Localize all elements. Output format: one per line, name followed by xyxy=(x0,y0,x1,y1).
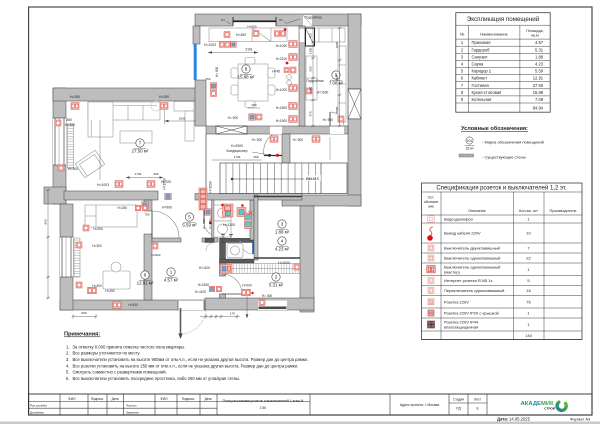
svg-text:Н=1500: Н=1500 xyxy=(209,181,213,192)
svg-text:Кабинет: Кабинет xyxy=(472,76,488,81)
svg-text:Н=300: Н=300 xyxy=(92,244,102,248)
svg-text:Переключатель одноклавишный: Переключатель одноклавишный xyxy=(444,288,504,293)
svg-text:Розетка 220V IP20 с крышкой: Розетка 220V IP20 с крышкой xyxy=(444,311,499,316)
svg-text:Н=250: Н=250 xyxy=(159,95,169,99)
svg-text:27.50: 27.50 xyxy=(533,83,544,88)
svg-text:5.: 5. xyxy=(66,370,70,375)
svg-text:7500: 7500 xyxy=(335,106,339,113)
svg-text:3: 3 xyxy=(281,222,284,227)
svg-text:Н=450: Н=450 xyxy=(236,33,246,37)
svg-text:ние: ние xyxy=(428,205,434,209)
svg-text:Подсобнка: Подсобнка xyxy=(306,79,323,83)
svg-text:4.23 м²: 4.23 м² xyxy=(275,247,290,252)
svg-text:Гостиная: Гостиная xyxy=(472,83,489,88)
svg-text:П1: П1 xyxy=(279,18,283,22)
svg-text:Все выключатели установить на: Все выключатели установить на высоте 900… xyxy=(73,357,309,362)
svg-text:Видеодомофон: Видеодомофон xyxy=(444,217,473,222)
svg-text:450: 450 xyxy=(309,33,313,38)
svg-text:250: 250 xyxy=(251,103,256,107)
svg-text:ВН-МЗ: ВН-МЗ xyxy=(306,176,319,181)
svg-text:Наименование: Наименование xyxy=(480,32,509,37)
svg-text:Н=1000: Н=1000 xyxy=(276,88,287,92)
svg-text:Н=45: Н=45 xyxy=(272,70,280,74)
svg-text:Н=1500: Н=1500 xyxy=(163,178,167,189)
svg-text:84.94: 84.94 xyxy=(533,106,544,111)
svg-text:600: 600 xyxy=(309,66,313,71)
svg-text:1.88 м²: 1.88 м² xyxy=(275,230,290,235)
svg-text:4: 4 xyxy=(281,239,284,244)
svg-text:1:50: 1:50 xyxy=(260,406,267,410)
svg-text:Н=2100: Н=2100 xyxy=(276,57,287,61)
svg-text:Н=1100: Н=1100 xyxy=(199,266,210,270)
svg-text:За отметку 0.000 принята отмет: За отметку 0.000 принята отметка чистого… xyxy=(73,344,186,349)
svg-text:Экспликация помещений: Экспликация помещений xyxy=(467,16,540,23)
svg-text:Все размеры уточняются по мест: Все размеры уточняются по месту. xyxy=(73,351,141,356)
svg-text:1.88: 1.88 xyxy=(535,54,544,59)
svg-text:Н=900: Н=900 xyxy=(152,253,161,257)
svg-text:Формат А3: Формат А3 xyxy=(570,417,591,422)
svg-text:Стадия: Стадия xyxy=(453,398,464,402)
svg-text:250: 250 xyxy=(205,77,210,81)
svg-text:1739: 1739 xyxy=(234,155,241,159)
svg-text:Н=2500: Н=2500 xyxy=(231,144,243,148)
svg-text:Н=300: Н=300 xyxy=(68,167,78,171)
svg-text:обозначе: обозначе xyxy=(424,200,439,204)
svg-text:Н=200: Н=200 xyxy=(242,284,252,288)
svg-text:влагозащищенная: влагозащищенная xyxy=(444,325,478,330)
svg-text:- Существующие стены: - Существующие стены xyxy=(482,155,526,160)
svg-text:СТРОЙ: СТРОЙ xyxy=(544,406,555,410)
svg-text:450: 450 xyxy=(66,118,72,122)
svg-text:Н=250: Н=250 xyxy=(93,227,103,231)
svg-text:Н=1000: Н=1000 xyxy=(276,44,287,48)
svg-text:1500: 1500 xyxy=(335,41,339,48)
svg-text:2: 2 xyxy=(275,275,278,280)
svg-text:Коридор 2: Коридор 2 xyxy=(472,69,492,74)
svg-text:1.: 1. xyxy=(66,344,70,349)
svg-text:Н= 900: Н= 900 xyxy=(228,116,239,120)
svg-text:Н=1100: Н=1100 xyxy=(223,223,235,227)
svg-text:Н= 300: Н= 300 xyxy=(262,294,273,298)
svg-text:Н= 900: Н= 900 xyxy=(323,118,334,122)
svg-text:960: 960 xyxy=(44,219,48,224)
svg-text:10: 10 xyxy=(526,231,531,236)
svg-text:РД: РД xyxy=(456,407,461,411)
svg-text:15.88: 15.88 xyxy=(533,90,544,95)
svg-text:Примечания:: Примечания: xyxy=(64,332,100,338)
svg-text:Заказчик: Заказчик xyxy=(126,410,139,414)
svg-text:Санузел: Санузел xyxy=(472,54,489,59)
svg-text:Н=300: Н=300 xyxy=(65,123,75,127)
svg-text:Рук.службы: Рук.службы xyxy=(30,404,48,408)
svg-text:Дата: Дата xyxy=(204,397,211,401)
svg-text:Гардероб: Гардероб xyxy=(472,47,491,52)
svg-text:Н=1900: Н=1900 xyxy=(276,119,287,123)
svg-text:Все выключатели установить пос: Все выключатели установить посередине пр… xyxy=(73,376,241,381)
svg-text:8: 8 xyxy=(245,67,248,72)
svg-text:5.59: 5.59 xyxy=(535,69,544,74)
svg-text:12.91 м²: 12.91 м² xyxy=(137,281,154,286)
svg-text:14.05.2025: 14.05.2025 xyxy=(509,417,531,422)
svg-text:Н=1100: Н=1100 xyxy=(195,290,206,294)
svg-text:750: 750 xyxy=(144,213,149,217)
svg-text:Описание: Описание xyxy=(468,209,485,213)
svg-text:7: 7 xyxy=(139,141,142,146)
svg-text:Кол-во, шт: Кол-во, шт xyxy=(519,209,538,213)
svg-text:5.31 м²: 5.31 м² xyxy=(269,283,284,288)
svg-text:1300: 1300 xyxy=(309,47,313,54)
svg-text:Н=250: Н=250 xyxy=(118,206,128,210)
svg-text:Н=250: Н=250 xyxy=(105,289,115,293)
svg-text:1: 1 xyxy=(170,270,173,275)
svg-text:Условные обозначения:: Условные обозначения: xyxy=(461,125,528,132)
svg-text:Сауна: Сауна xyxy=(472,62,485,67)
svg-text:Дата: Дата xyxy=(111,397,118,401)
svg-text:470: 470 xyxy=(309,111,313,116)
svg-text:Лист: Лист xyxy=(474,398,481,402)
svg-text:2.: 2. xyxy=(66,351,70,356)
svg-text:Н=1003: Н=1003 xyxy=(204,43,216,47)
svg-text:15 м²: 15 м² xyxy=(465,147,474,151)
svg-text:Н=1500: Н=1500 xyxy=(276,106,287,110)
svg-text:7.08: 7.08 xyxy=(535,97,544,102)
svg-text:Н=250: Н=250 xyxy=(247,25,256,29)
svg-text:Прихожая: Прихожая xyxy=(472,40,491,45)
svg-text:4.: 4. xyxy=(66,363,70,368)
svg-text:170: 170 xyxy=(230,312,235,316)
svg-text:15.88 м²: 15.88 м² xyxy=(238,75,255,80)
svg-text:Кондиционер: Кондиционер xyxy=(227,149,248,153)
svg-text:76: 76 xyxy=(526,299,531,304)
svg-text:ФИО: ФИО xyxy=(160,397,168,401)
svg-text:Чертил: Чертил xyxy=(126,404,137,408)
svg-text:4.57 м²: 4.57 м² xyxy=(164,278,179,283)
svg-text:Н=1003: Н=1003 xyxy=(97,183,109,187)
svg-text:366: 366 xyxy=(253,155,258,159)
svg-text:Н= 900: Н= 900 xyxy=(202,219,206,229)
svg-text:Н= 900: Н= 900 xyxy=(208,219,212,229)
svg-text:Все розетки установить на высо: Все розетки установить на высоте 250 мм … xyxy=(73,363,299,368)
svg-text:Дизайнер: Дизайнер xyxy=(30,410,44,414)
svg-text:5.31: 5.31 xyxy=(535,47,544,52)
svg-text:12.91: 12.91 xyxy=(533,76,544,81)
svg-text:кв.м: кв.м xyxy=(531,34,539,38)
svg-text:Н=300: Н=300 xyxy=(128,303,138,307)
svg-text:6: 6 xyxy=(144,273,147,278)
svg-text:900: 900 xyxy=(81,311,86,315)
svg-text:Подпись: Подпись xyxy=(182,397,195,401)
svg-text:Розетка 220V: Розетка 220V xyxy=(444,299,469,304)
svg-text:Подсобнка: Подсобнка xyxy=(304,16,321,20)
svg-text:1739: 1739 xyxy=(135,172,142,176)
svg-text:8: 8 xyxy=(477,407,479,411)
svg-text:Н= 900: Н= 900 xyxy=(293,138,304,142)
svg-text:4.23: 4.23 xyxy=(535,62,544,67)
svg-text:Котельная: Котельная xyxy=(472,97,492,102)
svg-text:Спецификация розеток и выключа: Спецификация розеток и выключателей 1,2 … xyxy=(436,185,567,192)
svg-text:Дата:: Дата: xyxy=(497,417,508,422)
svg-text:План расстановки розеток и вык: План расстановки розеток и выключателей … xyxy=(223,399,304,403)
svg-text:6.: 6. xyxy=(66,376,70,381)
svg-text:600: 600 xyxy=(335,75,339,80)
svg-text:Площадь,: Площадь, xyxy=(526,29,544,33)
svg-text:№: № xyxy=(460,32,464,37)
svg-text:Н=1000: Н=1000 xyxy=(317,91,328,95)
svg-text:5.59 м²: 5.59 м² xyxy=(182,223,197,228)
svg-text:Интернет розетка RJ45 1х: Интернет розетка RJ45 1х xyxy=(444,278,493,283)
svg-text:Н=1000: Н=1000 xyxy=(278,261,289,265)
svg-text:Н= 900: Н= 900 xyxy=(215,67,219,78)
svg-text:(мастер): (мастер) xyxy=(444,269,461,274)
svg-text:22: 22 xyxy=(526,256,531,261)
svg-text:ФИО: ФИО xyxy=(68,397,76,401)
svg-text:Н= 900: Н= 900 xyxy=(252,138,263,142)
svg-text:Смотреть совместно с развертка: Смотреть совместно с развертками помещен… xyxy=(73,370,167,375)
svg-text:П1: П1 xyxy=(221,18,225,22)
svg-text:140: 140 xyxy=(525,333,532,338)
svg-text:5: 5 xyxy=(188,215,191,220)
svg-text:366: 366 xyxy=(153,172,158,176)
svg-text:Адрес проекта: г. Москва: Адрес проекта: г. Москва xyxy=(400,403,439,407)
svg-text:16: 16 xyxy=(526,288,531,293)
svg-text:Н=900: Н=900 xyxy=(162,206,172,210)
svg-text:Н=250: Н=250 xyxy=(70,95,80,99)
svg-text:Подпись: Подпись xyxy=(91,397,104,401)
svg-text:1500: 1500 xyxy=(309,86,313,93)
svg-text:Усл.: Усл. xyxy=(428,196,435,200)
svg-text:Н=1500: Н=1500 xyxy=(198,283,209,287)
svg-text:4.57: 4.57 xyxy=(535,40,544,45)
svg-text:Выключатель одноклавишный: Выключатель одноклавишный xyxy=(444,256,500,261)
svg-text:27.50 м²: 27.50 м² xyxy=(132,149,149,154)
svg-text:Выключатель двухклавишный: Выключатель двухклавишный xyxy=(444,246,500,251)
svg-text:Вывод кабеля 220V: Вывод кабеля 220V xyxy=(444,231,481,236)
svg-text:Кухня-столовая: Кухня-столовая xyxy=(472,90,502,95)
svg-text:3.: 3. xyxy=(66,357,70,362)
svg-text:2101: 2101 xyxy=(245,48,253,52)
svg-text:Производитель: Производитель xyxy=(549,209,576,213)
svg-text:- Марка обозначения помещений: - Марка обозначения помещений xyxy=(482,140,544,145)
svg-text:101: 101 xyxy=(467,139,473,143)
svg-text:1503: 1503 xyxy=(179,117,186,121)
